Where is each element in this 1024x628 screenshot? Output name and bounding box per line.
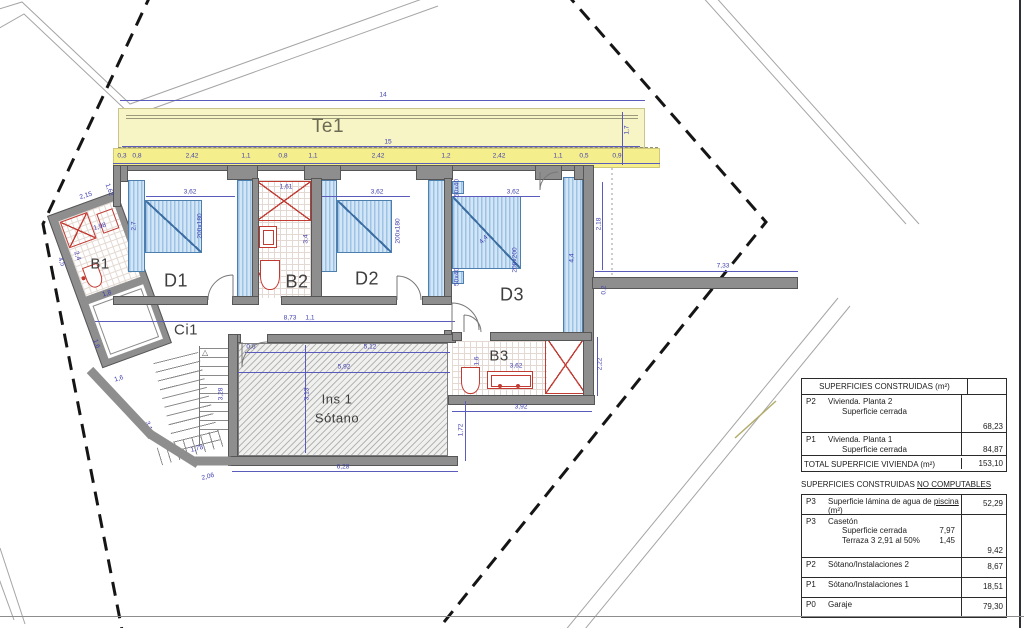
sheet-right-border	[1019, 0, 1021, 628]
heading-underlined-part: NO COMPUTABLES	[917, 480, 991, 489]
row-description: Vivienda. Planta 1 Superficie cerrada	[826, 433, 961, 455]
table-header-title: SUPERFICIES CONSTRUIDAS (m²)	[802, 379, 967, 394]
heading-plain-part: SUPERFICIES CONSTRUIDAS	[801, 480, 917, 489]
row-code: P2	[802, 395, 826, 432]
table-row: P1Sótano/Instalaciones 118,51	[802, 578, 1006, 598]
total-label: TOTAL SUPERFICIE VIVIENDA (m²)	[802, 457, 961, 471]
door-arcs	[208, 172, 558, 367]
row-description: Garaje	[826, 598, 961, 617]
row-desc-line: Vivienda. Planta 2	[828, 397, 959, 407]
row-desc-line: Superficie cerrada	[828, 445, 959, 455]
row-value: 79,30	[961, 598, 1006, 617]
sheet-bottom-line	[0, 616, 1024, 617]
row-value: 52,29	[961, 495, 1006, 514]
table-header-value-cell	[967, 379, 1006, 394]
row-desc-line: Vivienda. Planta 1	[828, 435, 959, 445]
row-value: 84,87	[961, 433, 1006, 455]
row-code: P3	[802, 495, 826, 514]
row-description: Superficie lámina de agua de piscina (m²…	[826, 495, 961, 514]
row-description: Sótano/Instalaciones 2	[826, 558, 961, 577]
row-code: P1	[802, 578, 826, 597]
row-description: CasetónSuperficie cerrada7,97Terraza 3 2…	[826, 515, 961, 557]
row-description: Vivienda. Planta 2 Superficie cerrada	[826, 395, 961, 432]
row-desc-line: Superficie cerrada	[828, 407, 959, 417]
table-row: P1 Vivienda. Planta 1 Superficie cerrada…	[802, 433, 1006, 456]
table-row: P2Sótano/Instalaciones 28,67	[802, 558, 1006, 578]
non-computable-surfaces-table: P3Superficie lámina de agua de piscina (…	[801, 494, 1007, 618]
floor-plan-sheet: △	[0, 0, 1024, 628]
row-code: P1	[802, 433, 826, 455]
row-value: 9,42	[961, 515, 1006, 557]
surface-areas-panel: SUPERFICIES CONSTRUIDAS (m²) P2 Vivienda…	[801, 378, 1007, 618]
constructed-surfaces-table: SUPERFICIES CONSTRUIDAS (m²) P2 Vivienda…	[801, 378, 1007, 472]
non-computable-heading: SUPERFICIES CONSTRUIDAS NO COMPUTABLES	[801, 480, 1007, 490]
row-code: P2	[802, 558, 826, 577]
row-description: Sótano/Instalaciones 1	[826, 578, 961, 597]
table-row: P2 Vivienda. Planta 2 Superficie cerrada…	[802, 395, 1006, 433]
table-row: P3Superficie lámina de agua de piscina (…	[802, 495, 1006, 515]
row-code: P3	[802, 515, 826, 557]
row-value: 8,67	[961, 558, 1006, 577]
table-header-row: SUPERFICIES CONSTRUIDAS (m²)	[802, 379, 1006, 395]
row-code: P0	[802, 598, 826, 617]
tilted-stair-walls	[90, 370, 231, 464]
table-row: P0Garaje79,30	[802, 598, 1006, 617]
table-total-row: TOTAL SUPERFICIE VIVIENDA (m²) 153,10	[802, 456, 1006, 471]
total-value: 153,10	[961, 458, 1006, 470]
row-value: 68,23	[961, 395, 1006, 432]
row-value: 18,51	[961, 578, 1006, 597]
table-row: P3CasetónSuperficie cerrada7,97Terraza 3…	[802, 515, 1006, 558]
